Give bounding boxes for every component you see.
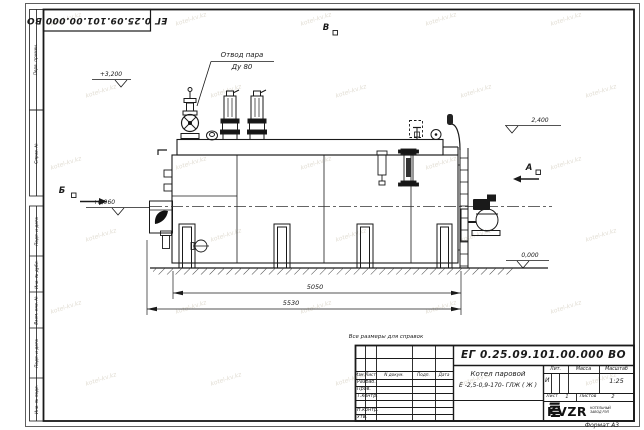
row-label-utv: Утв. <box>357 415 379 422</box>
view-label-a: А <box>523 163 535 174</box>
col-header-izm: Изм. <box>355 371 365 379</box>
margin-box-perv-primen: Перв. примен. <box>29 9 43 110</box>
margin-box-sprav-no: Справ. № <box>29 110 43 196</box>
elevation-drum-top: 2,400 <box>522 116 558 125</box>
dimension-boiler-length: 5050 <box>295 283 335 292</box>
sheet-label: Лист <box>544 394 560 401</box>
sheet-value: 1 <box>560 394 574 401</box>
sheets-label: Листов <box>577 394 599 401</box>
col-header-podp: Подп. <box>412 371 435 379</box>
margin-box-podp-data-1: Подп. и дата <box>29 206 43 256</box>
elevation-valve-top: +3,200 <box>92 70 130 79</box>
elevation-marks <box>86 80 561 269</box>
reference-note: Все размеры для справок <box>330 333 442 342</box>
manufacturer-logo: KVZR КОТЕЛЬНЫЙ ЗАВОД РЭП <box>547 402 633 420</box>
steam-outlet-valve <box>181 88 199 139</box>
corner-doc-number: ЕГ 0.25.09.101.00.000 ВО <box>43 9 151 31</box>
burner <box>150 201 173 233</box>
format-note: Формат А3 <box>570 422 634 430</box>
view-label-v: В <box>320 23 332 34</box>
steam-outlet-label-line1: Отвод пара <box>212 50 272 60</box>
margin-box-inv-podl: Инв. № подл. <box>29 378 43 421</box>
col-header-list: Лист <box>365 371 376 379</box>
elevation-burner-axis: +0,960 <box>86 198 122 207</box>
row-label-n-kontr: Н.контр. <box>357 408 379 415</box>
steam-outlet-label-line2: Ду 80 <box>212 62 272 72</box>
margin-box-inv-dubl: Инв. № дубл. <box>29 256 43 292</box>
lit-header: Лит. <box>543 366 568 374</box>
row-label-t-kontr: Т.контр. <box>357 394 379 401</box>
title-doc-number: ЕГ 0.25.09.101.00.000 ВО <box>455 347 632 363</box>
view-label-b: Б <box>56 186 68 197</box>
logo-coil-icon <box>547 402 560 417</box>
product-name-line1: Котел паровой <box>455 369 541 380</box>
drawing-sheet: kotel-kv.kzkotel-kv.kzkotel-kv.kzkotel-k… <box>0 0 644 430</box>
row-label-prov: Пров. <box>357 387 379 394</box>
row-label-razrab: Разраб. <box>357 380 379 387</box>
scale-value: 1:25 <box>599 376 634 387</box>
sheets-value: 2 <box>602 394 624 401</box>
col-header-data: Дата <box>435 371 453 379</box>
mass-header: Масса <box>568 366 599 374</box>
logo-caption-line2: ЗАВОД РЭП <box>590 411 611 415</box>
margin-box-vzam-inv: Взам. инв. № <box>29 292 43 328</box>
safety-valves <box>207 90 267 140</box>
view-arrows <box>72 31 541 206</box>
dimension-overall-length: 5530 <box>271 299 311 308</box>
rear-deck-fittings <box>410 114 461 150</box>
scale-header: Масштаб <box>599 366 634 374</box>
margin-box-podp-data-2: Подп. и дата <box>29 328 43 378</box>
lit-value: И <box>543 376 552 386</box>
col-header-n-dokum: N докум. <box>376 371 412 379</box>
product-name-line2: Е -2,5-0,9-170- ГЛЖ ( Ж ) <box>453 381 543 390</box>
ground-hatch <box>150 268 548 275</box>
elevation-ground: 0,000 <box>512 251 548 260</box>
ladder <box>458 148 468 268</box>
